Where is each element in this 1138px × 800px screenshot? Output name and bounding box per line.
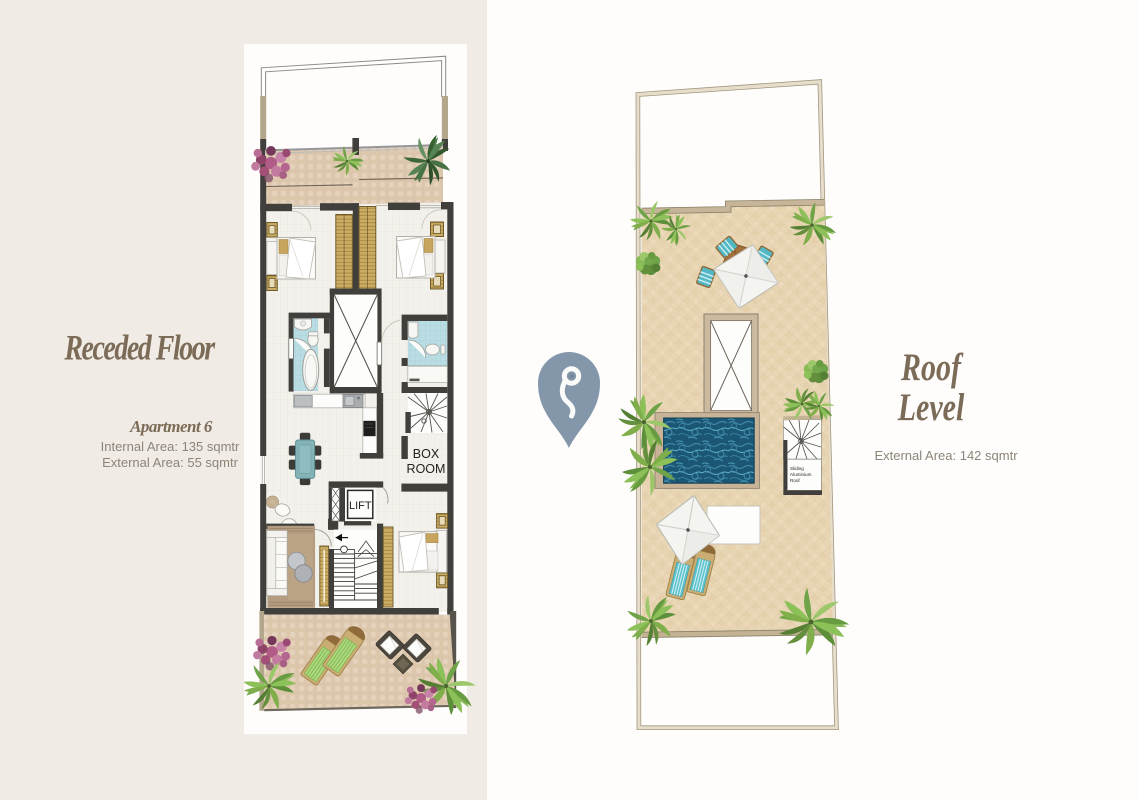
svg-text:ROOM: ROOM (407, 462, 446, 476)
svg-text:Sliding: Sliding (790, 466, 804, 471)
svg-text:Aluminium: Aluminium (790, 472, 812, 477)
svg-text:BOX: BOX (413, 447, 440, 461)
svg-text:Roof: Roof (790, 478, 800, 483)
svg-text:LIFT: LIFT (349, 500, 372, 512)
